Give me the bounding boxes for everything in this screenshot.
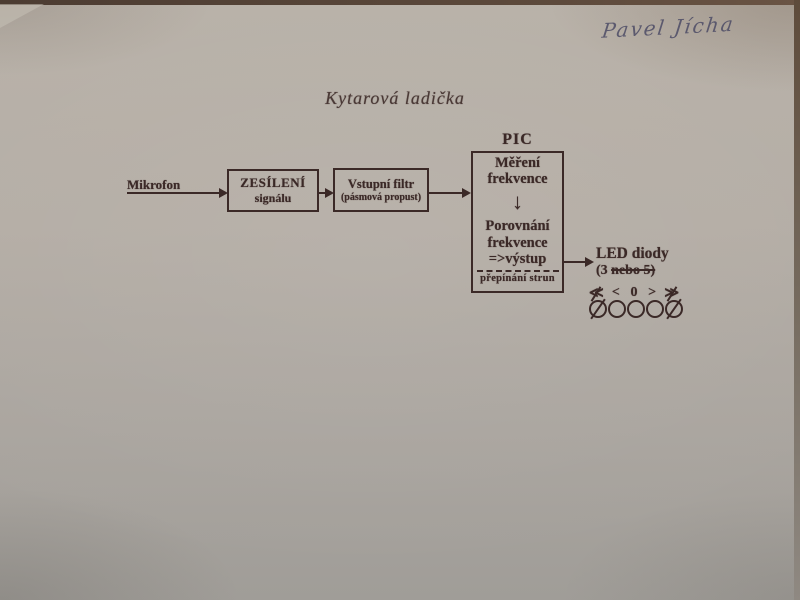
paper-photo: Pavel Jícha Kytarová ladička Mikrofon ZE… — [0, 0, 800, 600]
pic-measure-line2: frekvence — [473, 171, 562, 187]
led-circle — [608, 300, 626, 318]
page-title: Kytarová ladička — [300, 88, 490, 109]
amplifier-box-line1: ZESÍLENÍ — [240, 175, 305, 191]
input-filter-box-line1: Vstupní filtr — [348, 177, 414, 192]
arrow-pic-to-led-head — [585, 257, 594, 267]
pic-compare-line1: Porovnání — [473, 218, 562, 235]
arrow-pic-to-led-line — [562, 261, 586, 263]
led-circles-row — [589, 300, 683, 318]
led-count-struck: nebo 5) — [611, 263, 655, 278]
down-arrow-icon: ↓ — [473, 187, 562, 218]
pic-footer-label: přepínání strun — [473, 272, 562, 285]
led-circle-crossed — [589, 300, 607, 318]
led-label: LED diody — [596, 245, 669, 263]
arrow-filter-to-pic-line — [429, 192, 463, 194]
led-count-prefix: (3 — [596, 263, 611, 278]
pic-title: PIC — [471, 131, 564, 149]
pic-compare-line2: frekvence — [473, 235, 562, 252]
pic-measure-line1: Měření — [473, 155, 562, 171]
input-filter-box-line2: (pásmová propust) — [341, 192, 421, 203]
table-background-top-edge — [0, 0, 800, 5]
table-background-right-edge — [794, 0, 800, 600]
led-circle-crossed — [665, 300, 683, 318]
arrow-mic-to-amp-line — [127, 192, 220, 194]
pic-output-line: =>výstup — [473, 251, 562, 268]
led-circle — [646, 300, 664, 318]
led-circle — [627, 300, 645, 318]
handwritten-name: Pavel Jícha — [601, 9, 784, 43]
amplifier-box: ZESÍLENÍ signálu — [227, 169, 319, 212]
microphone-label: Mikrofon — [127, 177, 180, 193]
led-count-label: (3 nebo 5) — [596, 263, 655, 279]
arrow-filter-to-pic-head — [462, 188, 471, 198]
amplifier-box-line2: signálu — [255, 191, 292, 206]
pic-box: Měření frekvence ↓ Porovnání frekvence =… — [471, 151, 564, 293]
input-filter-box: Vstupní filtr (pásmová propust) — [333, 168, 429, 212]
paper-corner-curl — [0, 4, 44, 28]
